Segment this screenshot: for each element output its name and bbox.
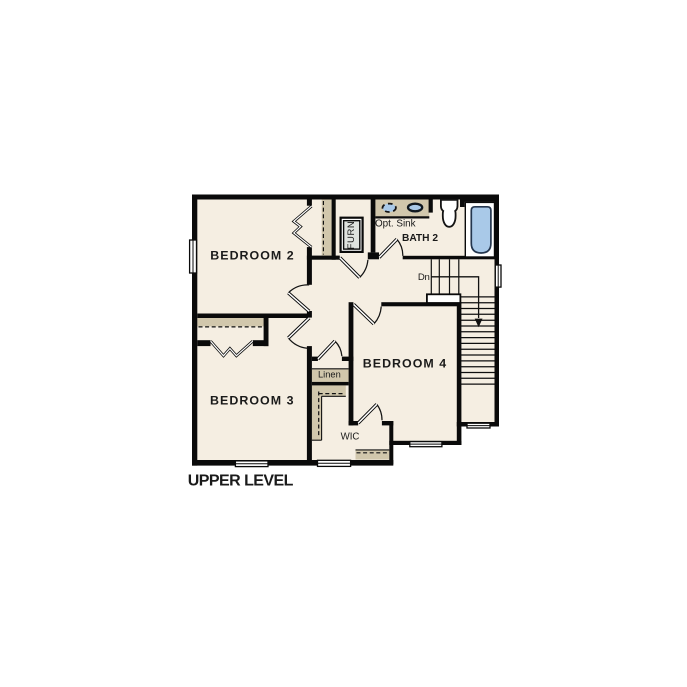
svg-text:Linen: Linen [318, 370, 341, 380]
svg-text:Opt. Sink: Opt. Sink [375, 219, 416, 230]
svg-text:BEDROOM 2: BEDROOM 2 [210, 249, 295, 263]
svg-text:BATH 2: BATH 2 [402, 233, 438, 244]
svg-text:FURN: FURN [346, 221, 357, 250]
svg-text:UPPER LEVEL: UPPER LEVEL [188, 473, 294, 490]
svg-text:BEDROOM 4: BEDROOM 4 [363, 357, 448, 371]
svg-text:Dn: Dn [418, 272, 430, 283]
svg-text:WIC: WIC [341, 432, 360, 443]
svg-text:BEDROOM 3: BEDROOM 3 [210, 394, 295, 408]
